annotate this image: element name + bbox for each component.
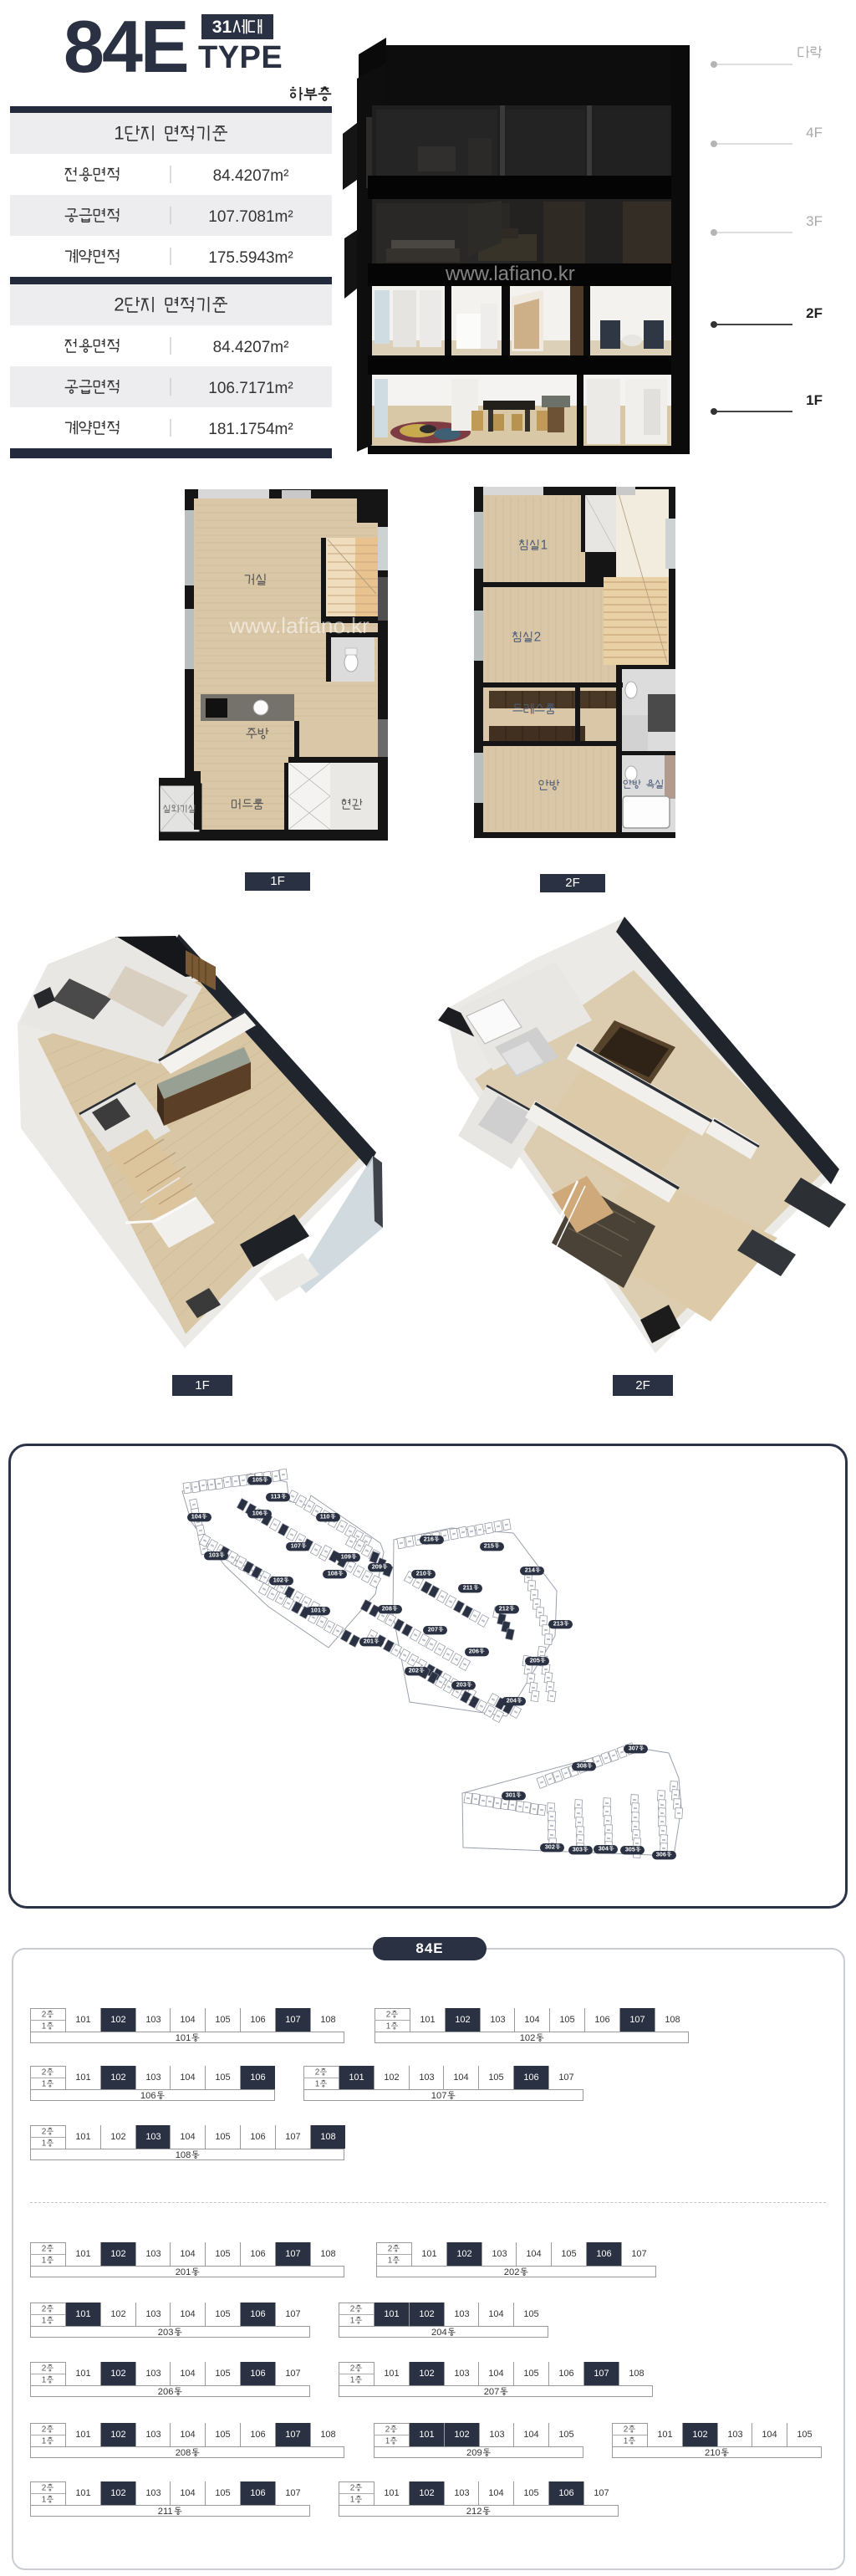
svg-text:3F: 3F bbox=[806, 213, 823, 229]
svg-text:175.5943m²: 175.5943m² bbox=[208, 249, 293, 267]
svg-text:84.4207m²: 84.4207m² bbox=[213, 339, 289, 356]
svg-text:181.1754m²: 181.1754m² bbox=[208, 421, 293, 438]
svg-text:84.4207m²: 84.4207m² bbox=[213, 167, 289, 185]
svg-text:2F: 2F bbox=[806, 305, 823, 321]
svg-text:www.lafiano.kr: www.lafiano.kr bbox=[445, 263, 575, 285]
svg-text:4F: 4F bbox=[806, 125, 823, 141]
svg-text:1F: 1F bbox=[806, 392, 823, 408]
